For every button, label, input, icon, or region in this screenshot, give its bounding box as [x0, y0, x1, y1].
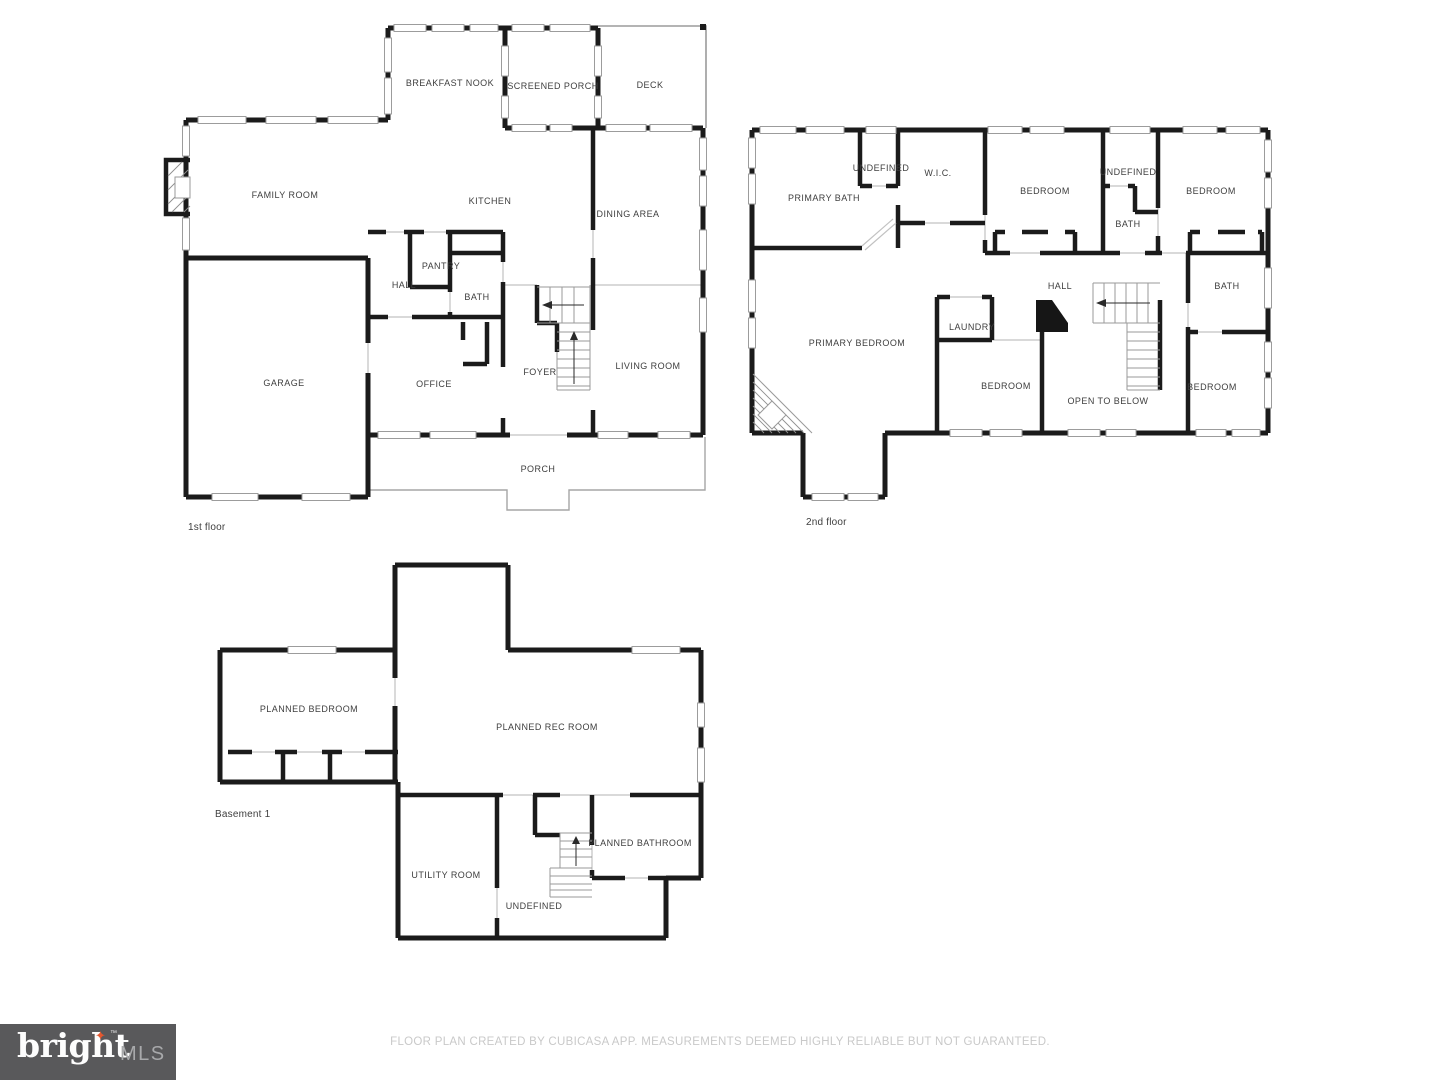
chimney [1036, 300, 1068, 332]
floor-plan-basement: PLANNED BEDROOM PLANNED REC ROOM UTILITY… [215, 565, 705, 938]
room-label-office: OFFICE [416, 379, 452, 389]
room-label-undefined-2: UNDEFINED [1100, 167, 1157, 177]
room-label-living-room: LIVING ROOM [616, 361, 681, 371]
room-label-wic: W.I.C. [924, 168, 951, 178]
room-label-open-to-below: OPEN TO BELOW [1067, 396, 1148, 406]
floor-label-basement: Basement 1 [215, 809, 271, 820]
room-label-bedroom-4: BEDROOM [1187, 382, 1237, 392]
room-label-hall-1f: HALL [392, 280, 416, 290]
room-label-undefined-b: UNDEFINED [506, 901, 563, 911]
room-label-bath-1f: BATH [464, 292, 489, 302]
room-label-bedroom-1: BEDROOM [1020, 186, 1070, 196]
floor-label-first: 1st floor [188, 522, 226, 533]
deck-corner-mark [700, 24, 706, 30]
room-label-bedroom-3: BEDROOM [981, 381, 1031, 391]
windows-2f [749, 127, 1272, 501]
room-label-bath-2f-1: BATH [1115, 219, 1140, 229]
hatched-corner [753, 374, 812, 433]
angled-door-primary-bath [862, 219, 896, 250]
room-label-kitchen: KITCHEN [469, 196, 512, 206]
room-label-deck: DECK [637, 80, 664, 90]
staircase-b [550, 833, 592, 897]
room-label-foyer: FOYER [523, 367, 556, 377]
door-opening-lines-b [252, 678, 648, 918]
room-label-pantry: PANTRY [422, 261, 460, 271]
room-label-planned-bedroom: PLANNED BEDROOM [260, 704, 358, 714]
room-label-planned-rec-room: PLANNED REC ROOM [496, 722, 598, 732]
room-label-garage: GARAGE [263, 378, 304, 388]
logo-spark-icon: ✦ [95, 1029, 106, 1044]
room-label-primary-bath: PRIMARY BATH [788, 193, 860, 203]
room-label-family-room: FAMILY ROOM [252, 190, 319, 200]
windows-b [288, 647, 705, 783]
room-label-dining-area: DINING AREA [597, 209, 660, 219]
room-label-bath-2f-2: BATH [1214, 281, 1239, 291]
logo-trademark: ™ [110, 1030, 117, 1037]
room-label-hall-2f: HALL [1048, 281, 1072, 291]
footer-disclaimer: FLOOR PLAN CREATED BY CUBICASA APP. MEAS… [0, 1036, 1440, 1048]
logo-suffix-text: MLS [120, 1043, 166, 1066]
floor-label-second: 2nd floor [806, 517, 847, 528]
staircase-2f [1093, 283, 1160, 390]
room-label-undefined-1: UNDEFINED [853, 163, 910, 173]
bright-mls-logo: bright ✦ ™ MLS [0, 1024, 176, 1080]
floor-plan-canvas: BREAKFAST NOOK SCREENED PORCH DECK FAMIL… [0, 0, 1440, 1020]
deck-outline [598, 26, 706, 128]
room-label-porch: PORCH [521, 464, 556, 474]
room-label-bedroom-2: BEDROOM [1186, 186, 1236, 196]
room-label-laundry: LAUNDRY [949, 322, 995, 332]
room-label-primary-bedroom: PRIMARY BEDROOM [809, 338, 905, 348]
floor-plan-first-floor: BREAKFAST NOOK SCREENED PORCH DECK FAMIL… [166, 24, 707, 533]
room-label-planned-bathroom: PLANNED BATHROOM [588, 838, 692, 848]
room-label-utility-room: UTILITY ROOM [411, 870, 480, 880]
room-label-breakfast-nook: BREAKFAST NOOK [406, 78, 494, 88]
room-label-screened-porch: SCREENED PORCH [507, 81, 598, 91]
floor-plan-second-floor: PRIMARY BATH UNDEFINED W.I.C. BEDROOM UN… [749, 127, 1272, 529]
